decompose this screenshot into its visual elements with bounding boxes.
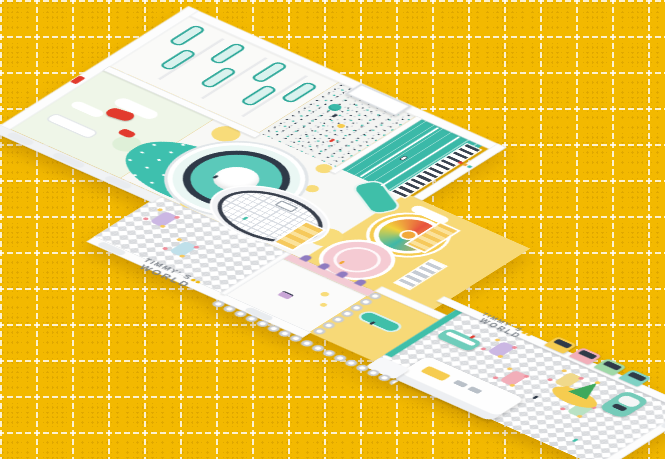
reception-yellow-panel: [420, 366, 451, 381]
claw-machine-screen: [602, 361, 622, 371]
reception-screen: [467, 386, 482, 394]
reception-screen: [453, 380, 468, 388]
claw-machine-screen: [627, 372, 647, 382]
claw-machine-screen: [553, 339, 573, 349]
isometric-floor-plan: TIMMY' S WORLD TIMMY' S WORLD TIMMY' S W…: [0, 15, 665, 459]
trampoline-sign: [274, 200, 298, 212]
claw-machine-screen: [578, 350, 598, 360]
label-accent-marks: [526, 333, 532, 336]
playground-render: TIMMY' S WORLD TIMMY' S WORLD TIMMY' S W…: [0, 0, 665, 459]
label-accent-marks: [195, 281, 201, 284]
